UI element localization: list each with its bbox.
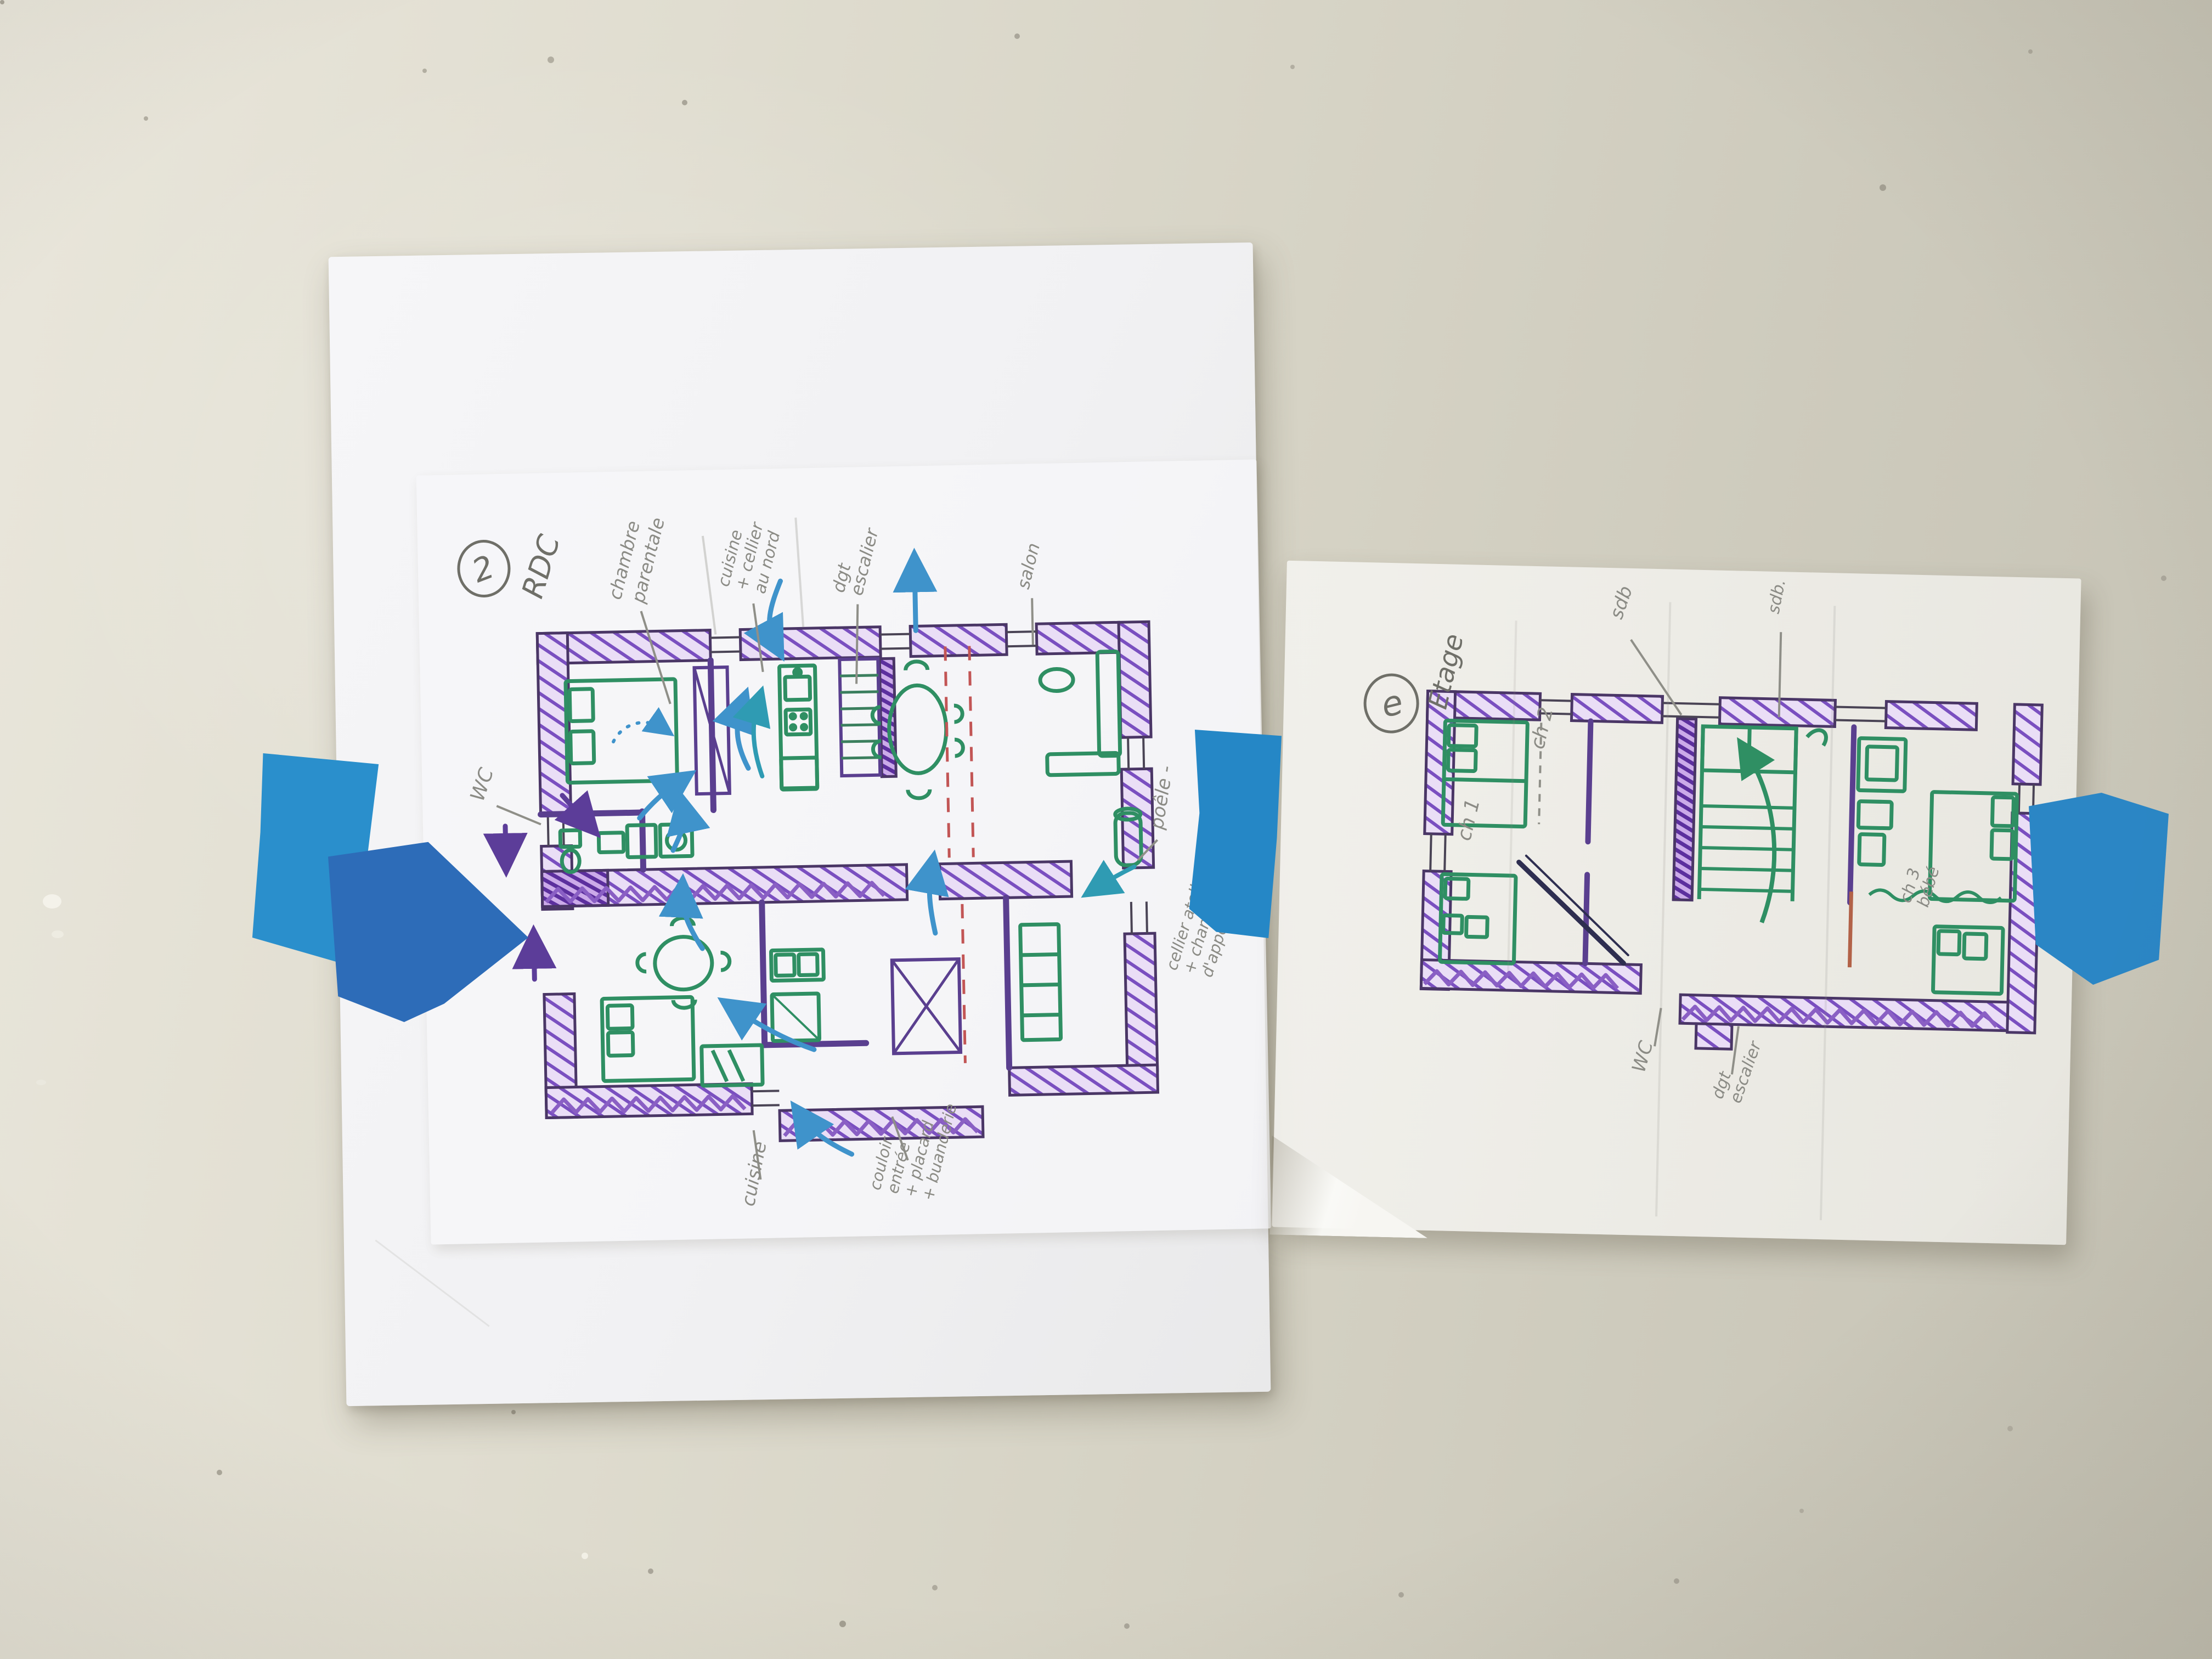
photo-canvas: { "scene": { "description": "Photo of tw… (0, 0, 2212, 1659)
photo-vignette (0, 0, 2212, 1659)
